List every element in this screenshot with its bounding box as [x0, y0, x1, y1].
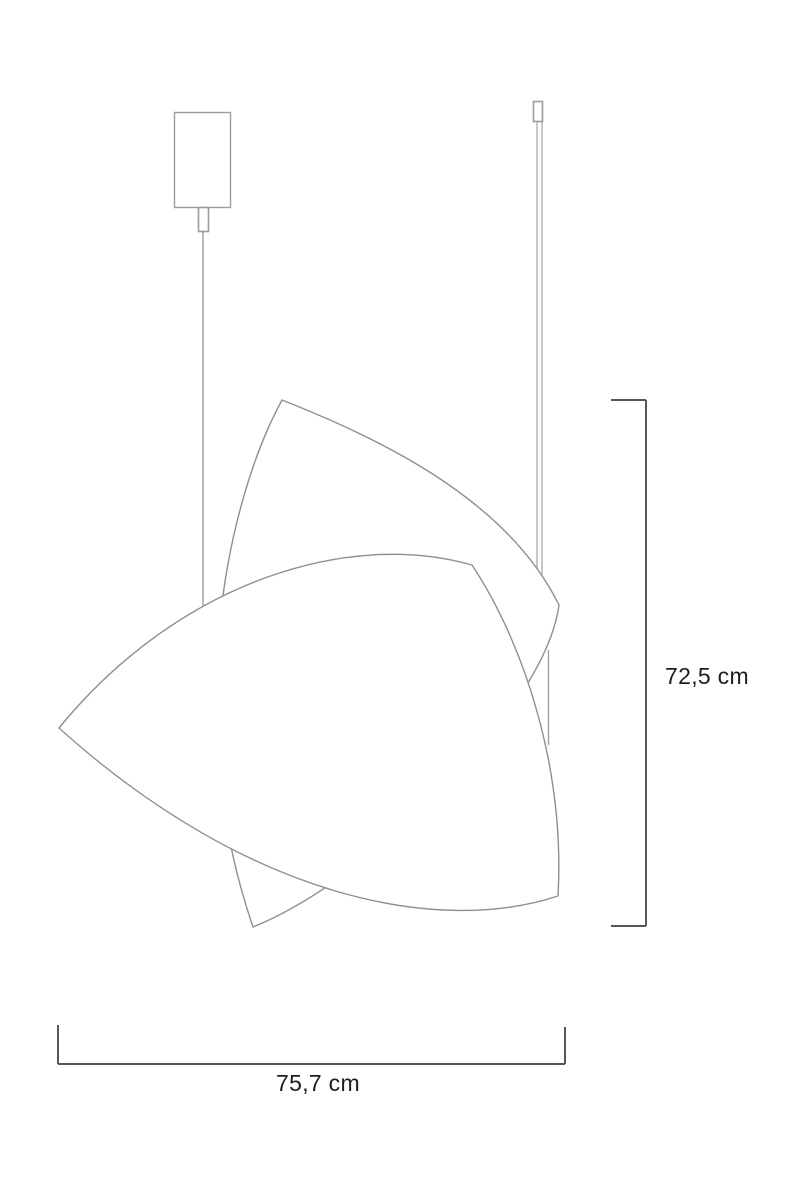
shade-group: [59, 400, 559, 927]
ceiling-canopy: [175, 113, 231, 208]
strain-relief: [199, 208, 209, 232]
shade-front-leaf: [59, 554, 559, 910]
drawing-canvas: 72,5 cm 75,7 cm: [0, 0, 800, 1200]
suspension-rod: [537, 122, 542, 641]
pendant-lamp-drawing: 72,5 cm 75,7 cm: [0, 0, 800, 1200]
width-dimension-bracket: [58, 1025, 565, 1064]
height-dimension-bracket: [611, 400, 646, 926]
width-dimension-label: 75,7 cm: [276, 1070, 360, 1096]
height-dimension-label: 72,5 cm: [665, 663, 749, 689]
rod-connector: [534, 102, 543, 122]
